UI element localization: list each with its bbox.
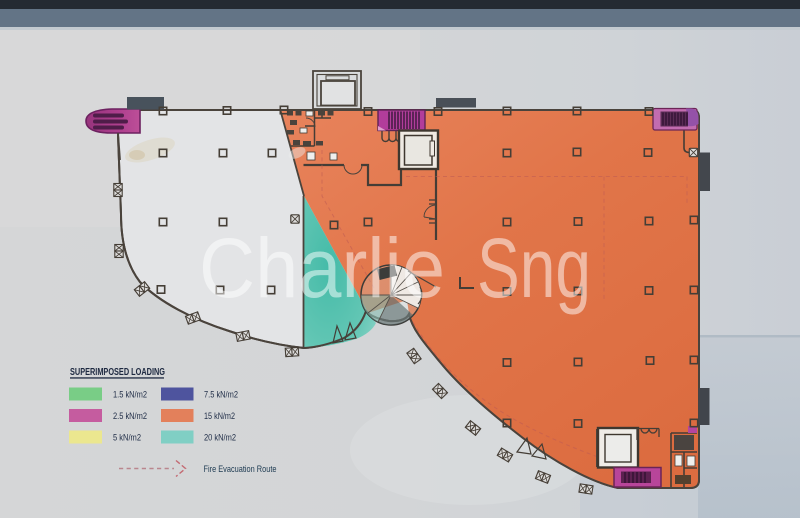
svg-text:1.5 kN/m2: 1.5 kN/m2 xyxy=(113,390,147,401)
svg-text:7.5 kN/m2: 7.5 kN/m2 xyxy=(204,390,238,401)
svg-text:Fire Evacuation Route: Fire Evacuation Route xyxy=(204,464,277,475)
svg-text:Sng: Sng xyxy=(477,221,591,315)
svg-text:Charlie: Charlie xyxy=(199,221,445,315)
svg-text:SUPERIMPOSED LOADING: SUPERIMPOSED LOADING xyxy=(70,366,165,378)
svg-text:5 kN/m2: 5 kN/m2 xyxy=(113,433,141,444)
svg-text:15 kN/m2: 15 kN/m2 xyxy=(204,411,235,422)
svg-text:2.5 kN/m2: 2.5 kN/m2 xyxy=(113,411,147,422)
svg-text:20 kN/m2: 20 kN/m2 xyxy=(204,433,236,444)
